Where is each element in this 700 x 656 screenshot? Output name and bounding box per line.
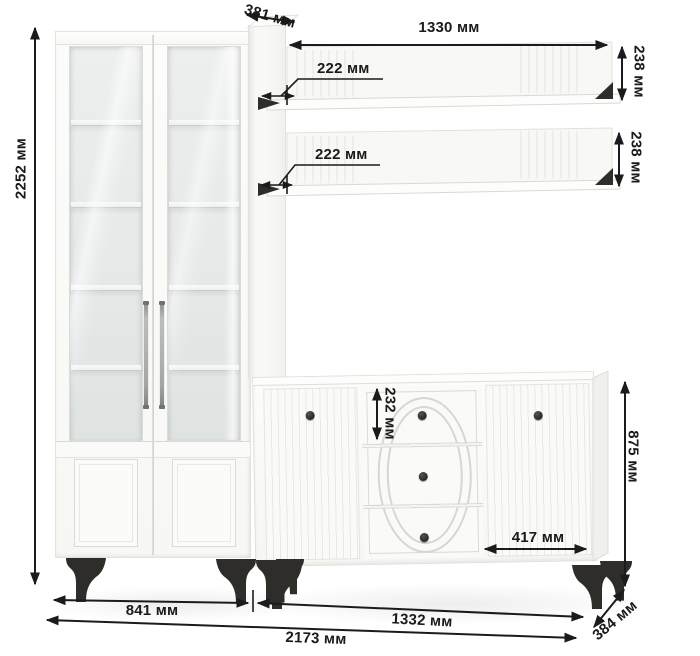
dim-label-shelf-width: 1330 мм (406, 19, 492, 36)
dim-label-shelf-depth-lower: 222 мм (315, 146, 368, 163)
wall-shelf-lower (258, 128, 620, 196)
sideboard-leg-right-back (600, 561, 632, 601)
dim-label-total-height: 2252 мм (13, 131, 30, 207)
dim-label-shelf-height-upper: 238 мм (631, 39, 648, 105)
dim-label-cabinet-width: 841 мм (110, 602, 194, 619)
cabinet-leg-left (66, 558, 106, 602)
furniture-dimension-diagram: 2252 мм 381 мм 1330 мм 238 мм 238 мм 222… (0, 0, 700, 656)
wall-shelf-upper (258, 42, 620, 110)
dim-label-sideboard-door-width: 417 мм (496, 529, 580, 546)
sideboard-side-panel (593, 371, 608, 561)
dim-label-sideboard-height: 875 мм (625, 424, 642, 490)
dim-label-shelf-height-lower: 238 мм (628, 125, 645, 191)
dim-label-total-width: 2173 мм (270, 628, 363, 648)
diagram-overlay (0, 0, 700, 656)
dim-label-drawer-height: 232 мм (382, 381, 399, 447)
cabinet-leg-right (216, 559, 256, 603)
dim-label-shelf-depth-upper: 222 мм (317, 60, 370, 77)
